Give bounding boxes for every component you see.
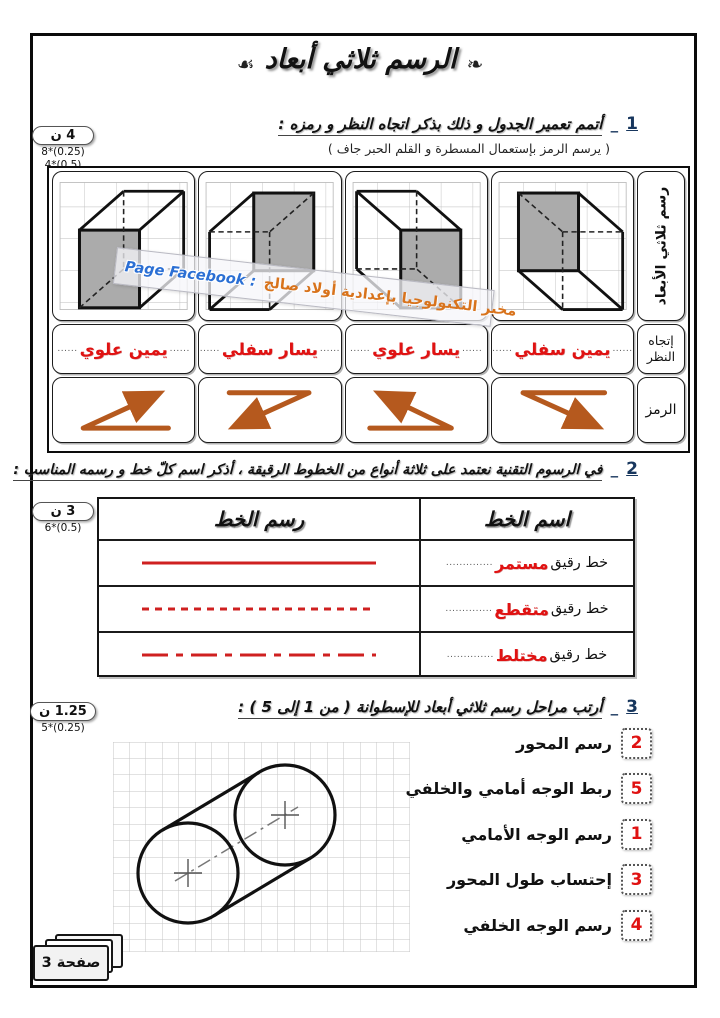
arrow-down-left-icon xyxy=(211,381,329,439)
score-pill-q2: 3 ن xyxy=(32,502,94,521)
score-detail-q3: 5*(0.25) xyxy=(28,722,98,734)
worksheet-page: ☙الرسم ثلاثي أبعاد❧ 1 _ أتمم تعمير الجدو… xyxy=(0,0,720,1018)
question-3-number: 3 xyxy=(626,697,638,717)
direction-answer-2: ...... يسار سفلي ...... xyxy=(198,324,341,374)
line-name-dashed: خط رقيق متقطع .............. xyxy=(419,585,633,631)
question-3-score: 1.25 ن 5*(0.25) xyxy=(28,700,98,734)
symbol-cell-2 xyxy=(198,377,341,443)
question-1-score: 4 ن 8*(0.25) 4*(0.5) xyxy=(28,124,98,171)
oblique-box-up-right-icon xyxy=(53,172,194,320)
table1-header-drawing: رسم ثلاثي الأبعاد xyxy=(637,171,685,321)
line-sample-mixed xyxy=(99,631,419,677)
table2-header-name: اسم الخط xyxy=(419,499,633,539)
leader-dots: ...... xyxy=(170,344,190,354)
question-1-separator: _ xyxy=(608,115,622,133)
page-number-badge: صفحة 3 xyxy=(33,934,133,984)
line-sample-dashed xyxy=(99,585,419,631)
line-answer-continuous: مستمر xyxy=(495,554,548,573)
step-row-connect-faces: ربط الوجه أمامي والخلفي 5 xyxy=(392,774,652,804)
step-order-box: 3 xyxy=(621,864,652,895)
direction-answer-3-text: يسار علوي xyxy=(372,340,460,359)
leader-dots: ...... xyxy=(320,344,340,354)
leader-dots: ...... xyxy=(57,344,77,354)
question-2-number: 2 xyxy=(626,459,638,479)
step-order-box: 5 xyxy=(621,773,652,804)
table1-header-direction: إتجاه النظر xyxy=(637,324,685,374)
title-row: ☙الرسم ثلاثي أبعاد❧ xyxy=(0,44,720,76)
line-name-continuous: خط رقيق مستمر .............. xyxy=(419,539,633,585)
symbol-cell-3 xyxy=(345,377,488,443)
table2-header-drawing-label: رسم الخط xyxy=(214,507,304,531)
page-number-label: صفحة 3 xyxy=(33,945,109,981)
direction-answer-1-text: يمين علوي xyxy=(80,340,168,359)
symbol-cell-4 xyxy=(491,377,634,443)
step-label: ربط الوجه أمامي والخلفي xyxy=(405,779,612,798)
question-3-heading: 3 _ أرتب مراحل رسم ثلاثي أبعاد للإسطوانة… xyxy=(238,697,638,717)
page-title: الرسم ثلاثي أبعاد xyxy=(265,44,457,75)
arrow-up-left-icon xyxy=(357,381,475,439)
question-2-text: في الرسوم التقنية نعتمد على ثلاثة أنواع … xyxy=(13,462,602,481)
leader-dots: ...... xyxy=(462,344,482,354)
step-row-draw-axis: رسم المحور 2 xyxy=(392,728,652,758)
dash-dot-line-icon xyxy=(134,648,384,662)
question-3-text: أرتب مراحل رسم ثلاثي أبعاد للإسطوانة ( م… xyxy=(238,698,602,719)
step-label: رسم الوجه الأمامي xyxy=(461,825,612,844)
step-label: رسم المحور xyxy=(516,734,612,753)
step-label: إحتساب طول المحور xyxy=(447,870,612,889)
direction-answer-4-text: يمين سفلي xyxy=(514,340,610,359)
table1-header-symbol: الرمز xyxy=(637,377,685,443)
question-2-separator: _ xyxy=(608,460,622,478)
view-drawing-cell-4 xyxy=(491,171,634,321)
question-2-score: 3 ن 6*(0.5) xyxy=(28,500,98,534)
line-prefix: خط رقيق xyxy=(549,647,607,663)
direction-answer-2-text: يسار سفلي xyxy=(222,340,318,359)
symbol-cell-1 xyxy=(52,377,195,443)
view-drawing-cell-1 xyxy=(52,171,195,321)
leader-dots: .............. xyxy=(446,558,493,568)
table2-header-drawing: رسم الخط xyxy=(99,499,419,539)
symbol-header-label: الرمز xyxy=(645,402,676,418)
direction-header-line2: النظر xyxy=(647,349,675,365)
question-1-heading: 1 _ أتمم تعمير الجدول و ذلك بذكر اتجاه ا… xyxy=(278,114,638,134)
leader-dots: ...... xyxy=(612,344,632,354)
line-prefix: خط رقيق xyxy=(551,601,609,617)
arrow-down-right-icon xyxy=(503,381,621,439)
line-answer-mixed: مختلط xyxy=(496,646,548,665)
question-2-heading: 2 _ في الرسوم التقنية نعتمد على ثلاثة أن… xyxy=(13,459,638,479)
score-detail-q1-a: 8*(0.25) xyxy=(28,146,98,158)
title-ornament-right-icon: ❧ xyxy=(457,52,494,76)
line-answer-dashed: متقطع xyxy=(494,600,548,619)
step-order-box: 1 xyxy=(621,819,652,850)
question-1-subtext: ( يرسم الرمز بإستعمال المسطرة و القلم ال… xyxy=(328,141,610,156)
cylinder-oblique-drawing-icon xyxy=(113,742,410,952)
line-types-table: رسم الخط اسم الخط خط رقيق مستمر ........… xyxy=(97,497,635,677)
step-row-compute-axis-length: إحتساب طول المحور 3 xyxy=(392,865,652,895)
score-pill-q3: 1.25 ن xyxy=(30,702,96,721)
leader-dots: ...... xyxy=(200,344,220,354)
watermark-facebook-label: Page Facebook : xyxy=(124,259,257,290)
table1-header-drawing-label: رسم ثلاثي الأبعاد xyxy=(653,187,669,306)
line-sample-continuous xyxy=(99,539,419,585)
table2-header-name-label: اسم الخط xyxy=(484,507,570,531)
line-name-mixed: خط رقيق مختلط .............. xyxy=(419,631,633,677)
question-1-number: 1 xyxy=(626,114,638,134)
score-detail-q2: 6*(0.5) xyxy=(28,522,98,534)
leader-dots: ...... xyxy=(492,344,512,354)
arrow-up-right-icon xyxy=(65,381,183,439)
leader-dots: .............. xyxy=(445,604,492,614)
page-number-text: صفحة 3 xyxy=(42,955,101,971)
continuous-line-icon xyxy=(134,556,384,570)
oblique-box-down-right-icon xyxy=(492,172,633,320)
leader-dots: .............. xyxy=(447,650,494,660)
direction-answer-1: ...... يمين علوي ...... xyxy=(52,324,195,374)
leader-dots: ...... xyxy=(350,344,370,354)
direction-answer-4: ...... يمين سفلي ...... xyxy=(491,324,634,374)
cylinder-figure xyxy=(113,742,410,956)
dashed-line-icon xyxy=(134,602,384,616)
step-row-draw-front-face: رسم الوجه الأمامي 1 xyxy=(392,819,652,849)
step-row-draw-back-face: رسم الوجه الخلفي 4 xyxy=(392,910,652,940)
step-label: رسم الوجه الخلفي xyxy=(463,916,612,935)
title-ornament-left-icon: ☙ xyxy=(227,52,265,76)
ordering-steps-list: رسم المحور 2 ربط الوجه أمامي والخلفي 5 ر… xyxy=(392,728,652,956)
question-1-text: أتمم تعمير الجدول و ذلك بذكر اتجاه النظر… xyxy=(278,115,602,136)
question-3-separator: _ xyxy=(608,698,622,716)
step-order-box: 2 xyxy=(621,728,652,759)
step-order-box: 4 xyxy=(621,910,652,941)
direction-header-line1: إتجاه xyxy=(647,333,675,349)
line-prefix: خط رقيق xyxy=(550,555,608,571)
direction-answer-3: ...... يسار علوي ...... xyxy=(345,324,488,374)
score-pill-q1: 4 ن xyxy=(32,126,94,145)
